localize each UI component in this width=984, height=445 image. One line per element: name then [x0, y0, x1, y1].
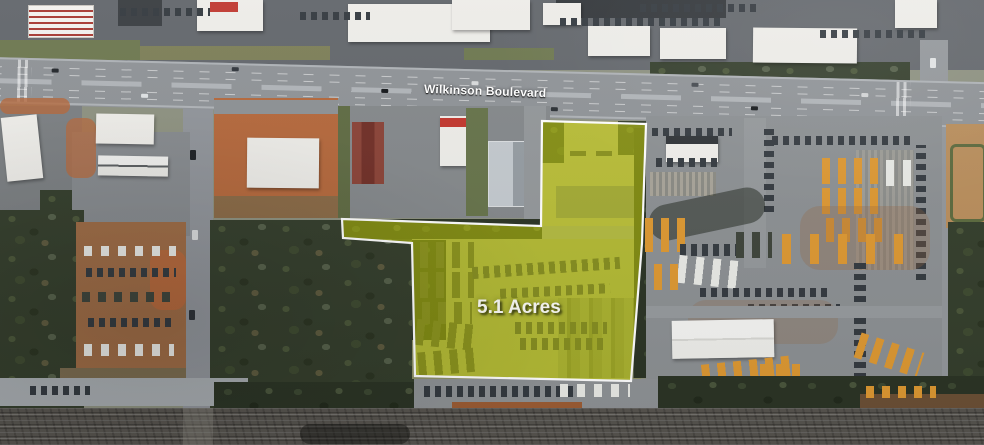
- parcel-highlight-layer: [0, 0, 984, 445]
- aerial-property-map: Wilkinson Boulevard 5.1 Acres: [0, 0, 984, 445]
- parcel-boundary-polygon: [342, 121, 646, 381]
- acreage-label: 5.1 Acres: [477, 297, 561, 319]
